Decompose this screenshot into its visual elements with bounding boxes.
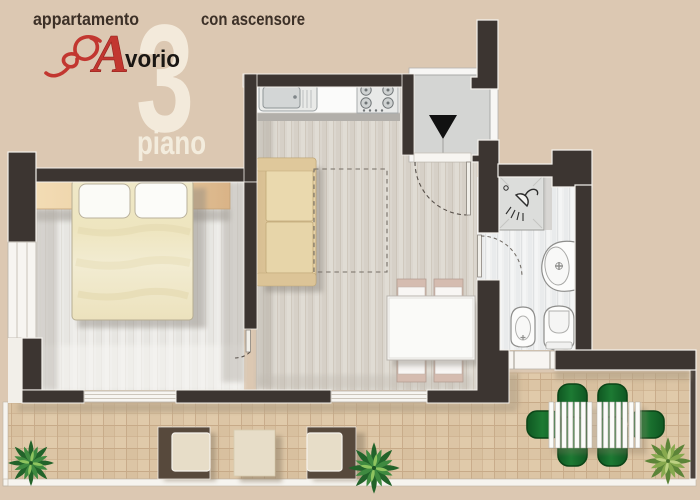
svg-text:vorio: vorio (125, 46, 180, 73)
svg-text:con ascensore: con ascensore (201, 9, 305, 29)
svg-text:piano: piano (137, 124, 206, 161)
